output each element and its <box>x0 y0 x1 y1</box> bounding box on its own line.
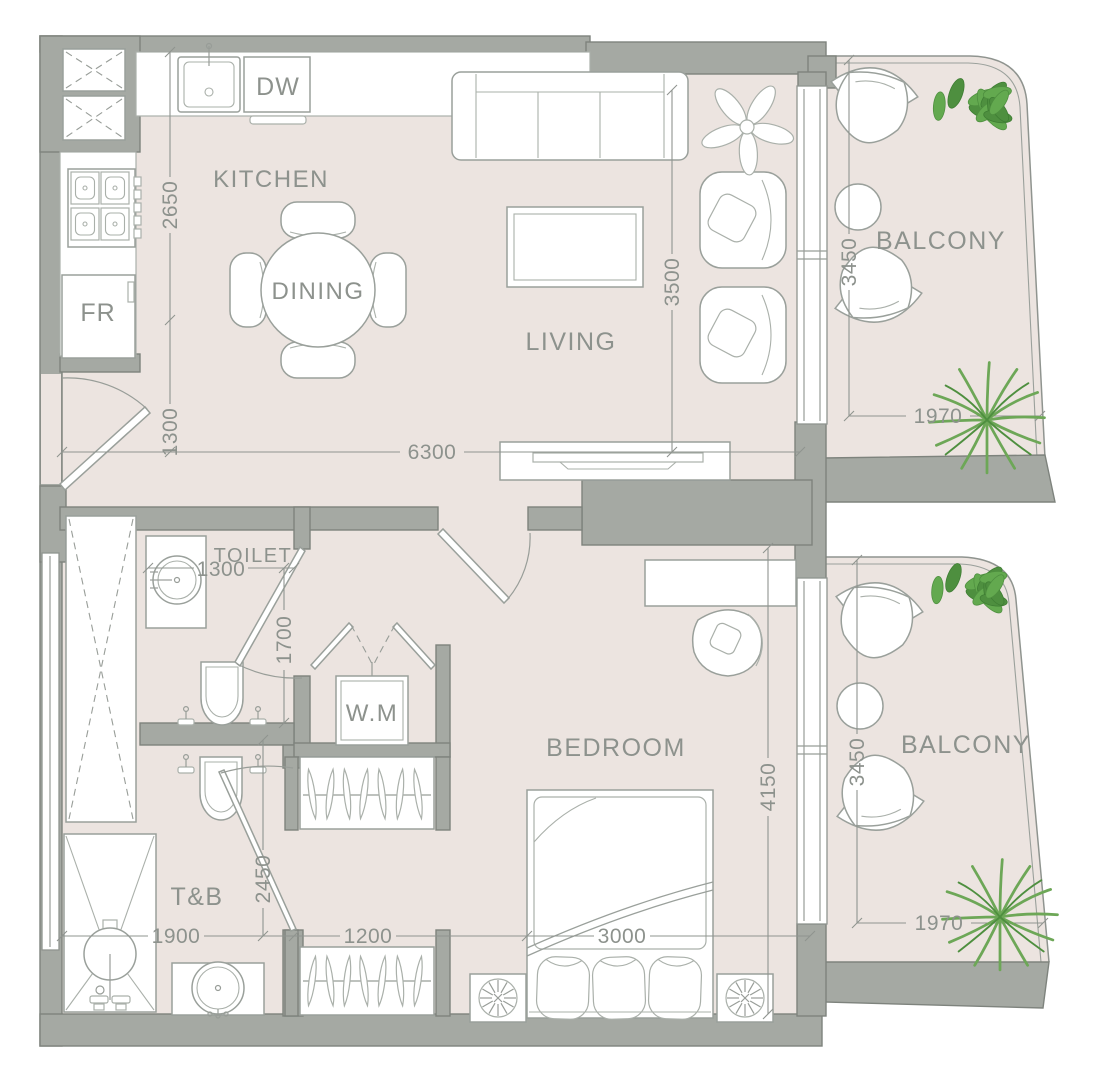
wall-mid-block <box>582 480 812 545</box>
coffee-table <box>507 207 643 287</box>
wall-wardrobe1-right <box>436 757 450 830</box>
desk-chair <box>693 610 763 676</box>
wardrobe-upper <box>300 757 434 829</box>
shaft-tall <box>66 516 136 822</box>
dim-kitchen-depth: 2650 <box>159 181 182 230</box>
bed <box>527 790 713 1020</box>
bath-label: T&B <box>170 883 223 911</box>
armchair-1 <box>700 172 786 268</box>
pillow-1 <box>536 956 590 1020</box>
wall-right-lower <box>797 924 826 1016</box>
dim-entry-width: 1300 <box>159 408 182 457</box>
armchair-2 <box>700 287 786 383</box>
nightstand-right <box>717 974 773 1022</box>
tv-console <box>500 442 730 480</box>
dim-balcony-upper-depth: 3450 <box>838 238 861 287</box>
stove <box>68 169 141 247</box>
living-label: LIVING <box>526 328 617 356</box>
wardrobe-lower <box>300 947 434 1015</box>
balcony-upper-label: BALCONY <box>876 227 1006 255</box>
wall-toilet-bath-divider <box>140 723 294 745</box>
pillow-3 <box>648 956 702 1020</box>
wall-wardrobe2-right <box>436 930 450 1016</box>
wall-hall-right <box>528 507 582 530</box>
dim-bath-door: 2450 <box>252 855 275 904</box>
wm-label: W.M <box>346 700 399 727</box>
wall-toilet-right-top <box>294 507 310 549</box>
balcony-lower-base-wall <box>823 962 1049 1008</box>
toilet-sink <box>146 536 206 628</box>
sofa <box>452 72 688 160</box>
dim-wardrobe-width: 1200 <box>344 925 393 948</box>
wall-bottom <box>40 1014 822 1046</box>
wall-toilet-right-bottom <box>294 676 310 748</box>
wall-closet-right <box>436 645 450 757</box>
dim-toilet-width: 1300 <box>197 558 246 581</box>
dim-bed-width: 3000 <box>598 925 647 948</box>
floor-plan-page: KITCHEN DINING LIVING TOILET W.M BEDROOM… <box>0 0 1102 1080</box>
balcony-upper-table <box>835 184 881 230</box>
dim-overall-width: 6300 <box>408 441 457 464</box>
dim-balcony-lower-depth: 3450 <box>846 738 869 787</box>
bath-shower <box>64 834 156 1012</box>
dim-balcony-lower-width: 1970 <box>915 912 964 935</box>
desk <box>645 560 796 606</box>
sliding-door-lower-balcony <box>797 578 827 924</box>
bedroom-label: BEDROOM <box>546 734 686 762</box>
fridge-label: FR <box>80 299 115 327</box>
balcony-upper-base-wall <box>823 455 1055 502</box>
dim-living-width: 3500 <box>661 258 684 307</box>
dim-bath-width: 1900 <box>152 925 201 948</box>
balcony-lower-table <box>837 683 883 729</box>
dim-balcony-upper-width: 1970 <box>914 405 963 428</box>
wall-top-right <box>586 42 826 74</box>
balcony-lower-label: BALCONY <box>901 731 1031 759</box>
shaft-box-1 <box>63 49 125 91</box>
toilet-bowl <box>201 662 243 725</box>
pillow-2 <box>592 956 646 1020</box>
kitchen-label: KITCHEN <box>213 166 329 193</box>
dim-toilet-depth: 1700 <box>273 616 296 665</box>
shaft-box-2 <box>63 96 125 140</box>
dishwasher-label: DW <box>256 73 300 101</box>
floor-plan: KITCHEN DINING LIVING TOILET W.M BEDROOM… <box>0 0 1102 1080</box>
sliding-door-upper-balcony <box>797 86 827 424</box>
dim-bedroom-depth: 4150 <box>757 763 780 812</box>
nightstand-left <box>470 974 526 1022</box>
dining-label: DINING <box>272 278 365 305</box>
wall-wardrobe2-left <box>285 930 298 1016</box>
bath-sink <box>172 962 264 1018</box>
